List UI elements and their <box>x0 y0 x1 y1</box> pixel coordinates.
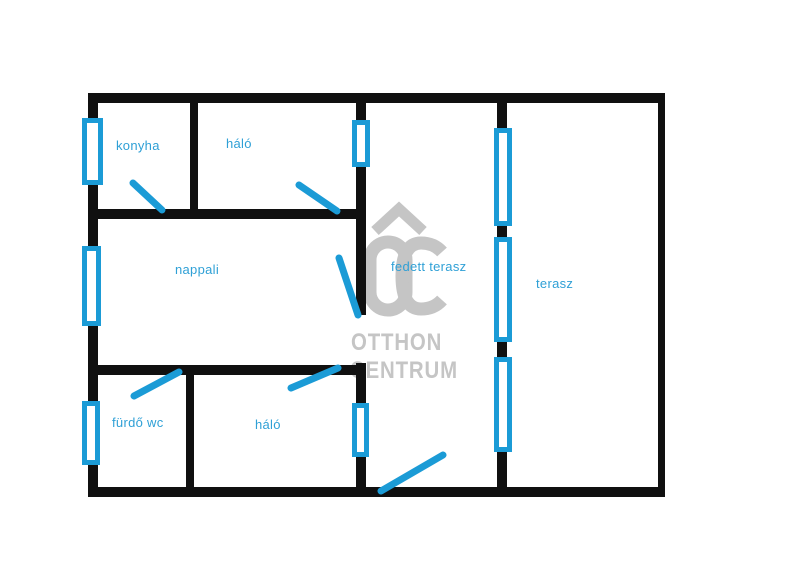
room-label-fedett-terasz: fedett terasz <box>391 259 466 274</box>
room-label-terasz: terasz <box>536 276 573 291</box>
room-label-halo-bottom: háló <box>255 417 281 432</box>
door-swing-nappali <box>339 258 358 315</box>
floor-plan-canvas: OTTHON CENTRUM konyha háló nappali fürdő… <box>0 0 800 588</box>
room-label-halo-top: háló <box>226 136 252 151</box>
door-swing-halo-top <box>299 185 337 211</box>
door-swing-furdo <box>134 372 179 396</box>
door-swing-konyha <box>133 183 162 210</box>
room-label-furdo-wc: fürdő wc <box>112 415 164 430</box>
room-label-nappali: nappali <box>175 262 219 277</box>
door-swing-halo-bottom <box>291 368 338 388</box>
door-lines-layer <box>0 0 800 588</box>
door-swing-fedett-terasz <box>381 455 443 491</box>
room-label-konyha: konyha <box>116 138 160 153</box>
